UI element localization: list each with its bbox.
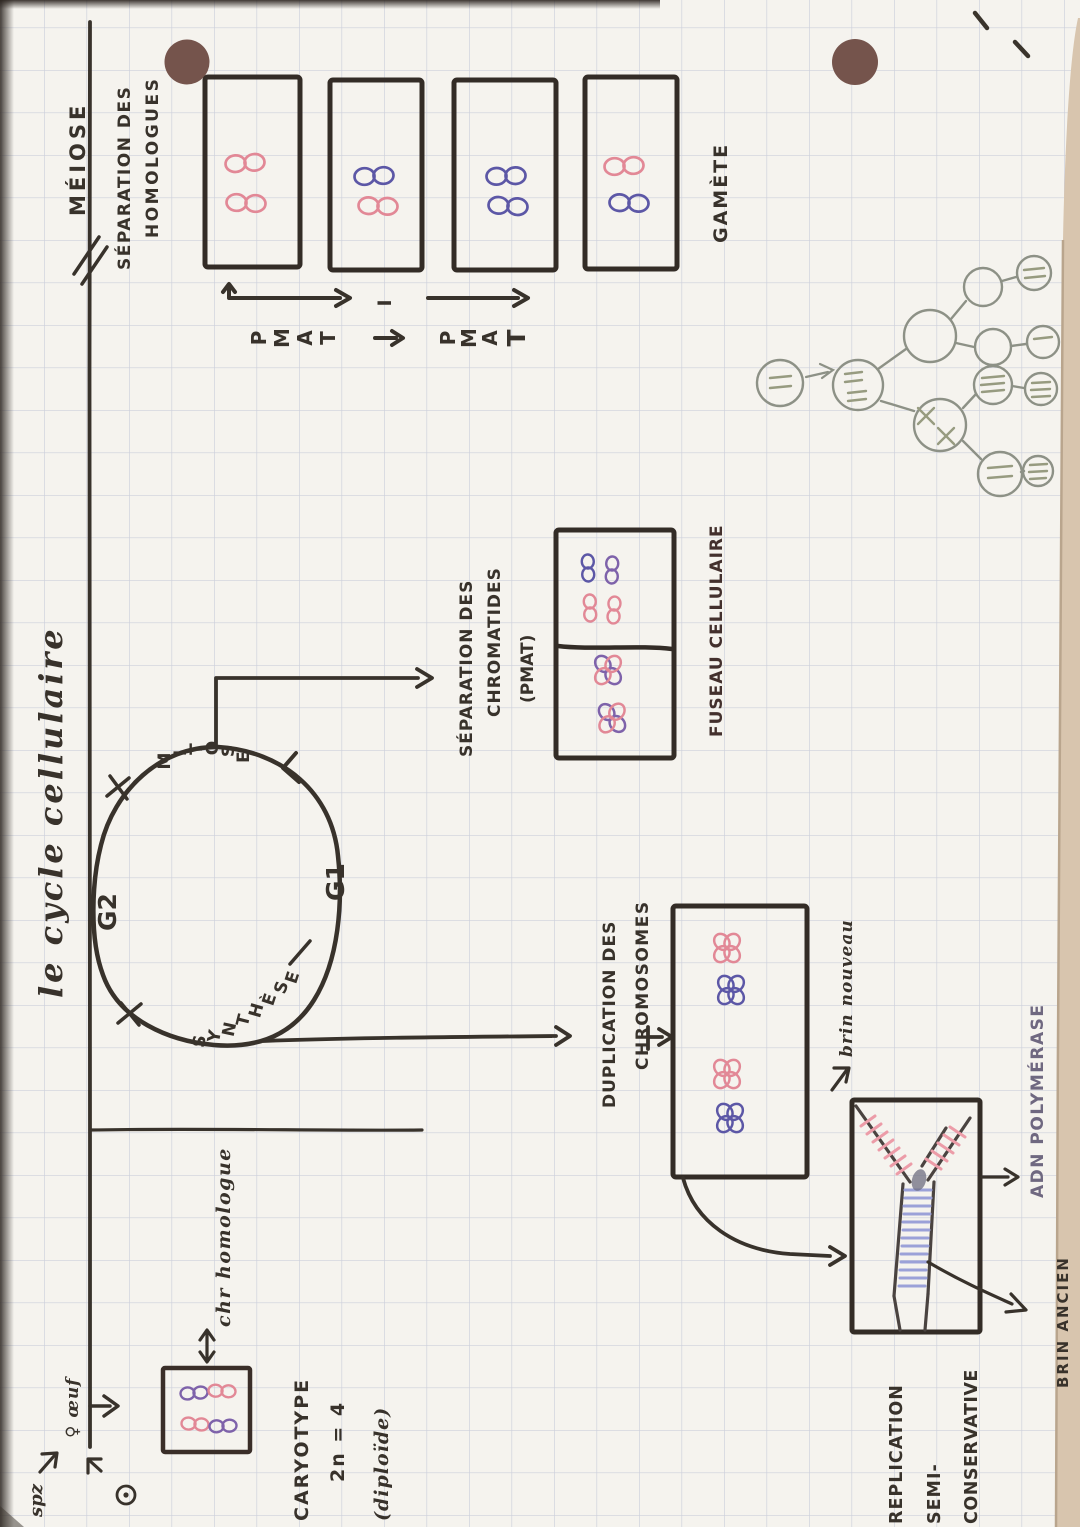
- spz-label: spz: [26, 1483, 47, 1518]
- svg-text:E: E: [234, 751, 254, 763]
- sep-chromatides-label-2: CHROMATIDES: [485, 567, 505, 717]
- replication-caption-3: CONSERVATIVE: [962, 1369, 982, 1524]
- page-title: le cycle cellulaire: [32, 626, 70, 998]
- division-1-numeral: I: [374, 299, 396, 306]
- oeuf-label: ♀ œuf: [63, 1376, 83, 1438]
- brin-nouveau-label: brin nouveau: [837, 919, 857, 1057]
- svg-text:P: P: [247, 331, 271, 346]
- svg-text:M: M: [270, 328, 294, 348]
- replication-caption-1: REPLICATION: [887, 1384, 907, 1524]
- svg-text:A: A: [293, 330, 317, 346]
- pmat-2-label: P M A T: [436, 328, 531, 348]
- timeline-line: [89, 22, 90, 1447]
- ploidy-label: 2n = 4: [327, 1401, 349, 1482]
- g1-label: G1: [321, 863, 350, 901]
- brin-ancien-label: BRIN ANCIEN: [1054, 1256, 1072, 1388]
- gamete-label: GAMÈTE: [709, 143, 732, 243]
- chr-homologue-label: chr homologue: [213, 1147, 235, 1327]
- fuseau-label: FUSEAU CELLULAIRE: [707, 524, 727, 737]
- meiose-label: MÉIOSE: [65, 102, 90, 216]
- duplication-label-1: DUPLICATION DES: [600, 921, 620, 1108]
- notebook-photo: le cycle cellulaire MÉIOSE SÉPARATION DE…: [0, 0, 1080, 1527]
- diploide-label: (diploïde): [371, 1407, 393, 1521]
- duplication-label-2: CHROMOSOMES: [633, 900, 653, 1070]
- g2-label: G2: [93, 893, 122, 931]
- svg-text:T: T: [316, 331, 340, 345]
- binder-hole: [165, 40, 210, 85]
- sep-chromatides-label-3: (PMAT): [518, 635, 538, 703]
- adn-polymerase-label: ADN POLYMÉRASE: [1026, 1004, 1048, 1198]
- binder-hole: [832, 39, 878, 85]
- lower-guide-line: [90, 1129, 422, 1130]
- caryotype-label: CARYOTYPE: [291, 1378, 313, 1521]
- sep-chromatides-label-1: SÉPARATION DES: [455, 580, 477, 757]
- separation-homologues-label-2: HOMOLOGUES: [143, 77, 163, 238]
- svg-text:T: T: [502, 329, 531, 346]
- separation-homologues-label-1: SÉPARATION DES: [113, 86, 135, 270]
- cell-divider: [558, 646, 672, 649]
- svg-text:A: A: [478, 330, 502, 346]
- replication-caption-2: SEMI-: [925, 1463, 945, 1524]
